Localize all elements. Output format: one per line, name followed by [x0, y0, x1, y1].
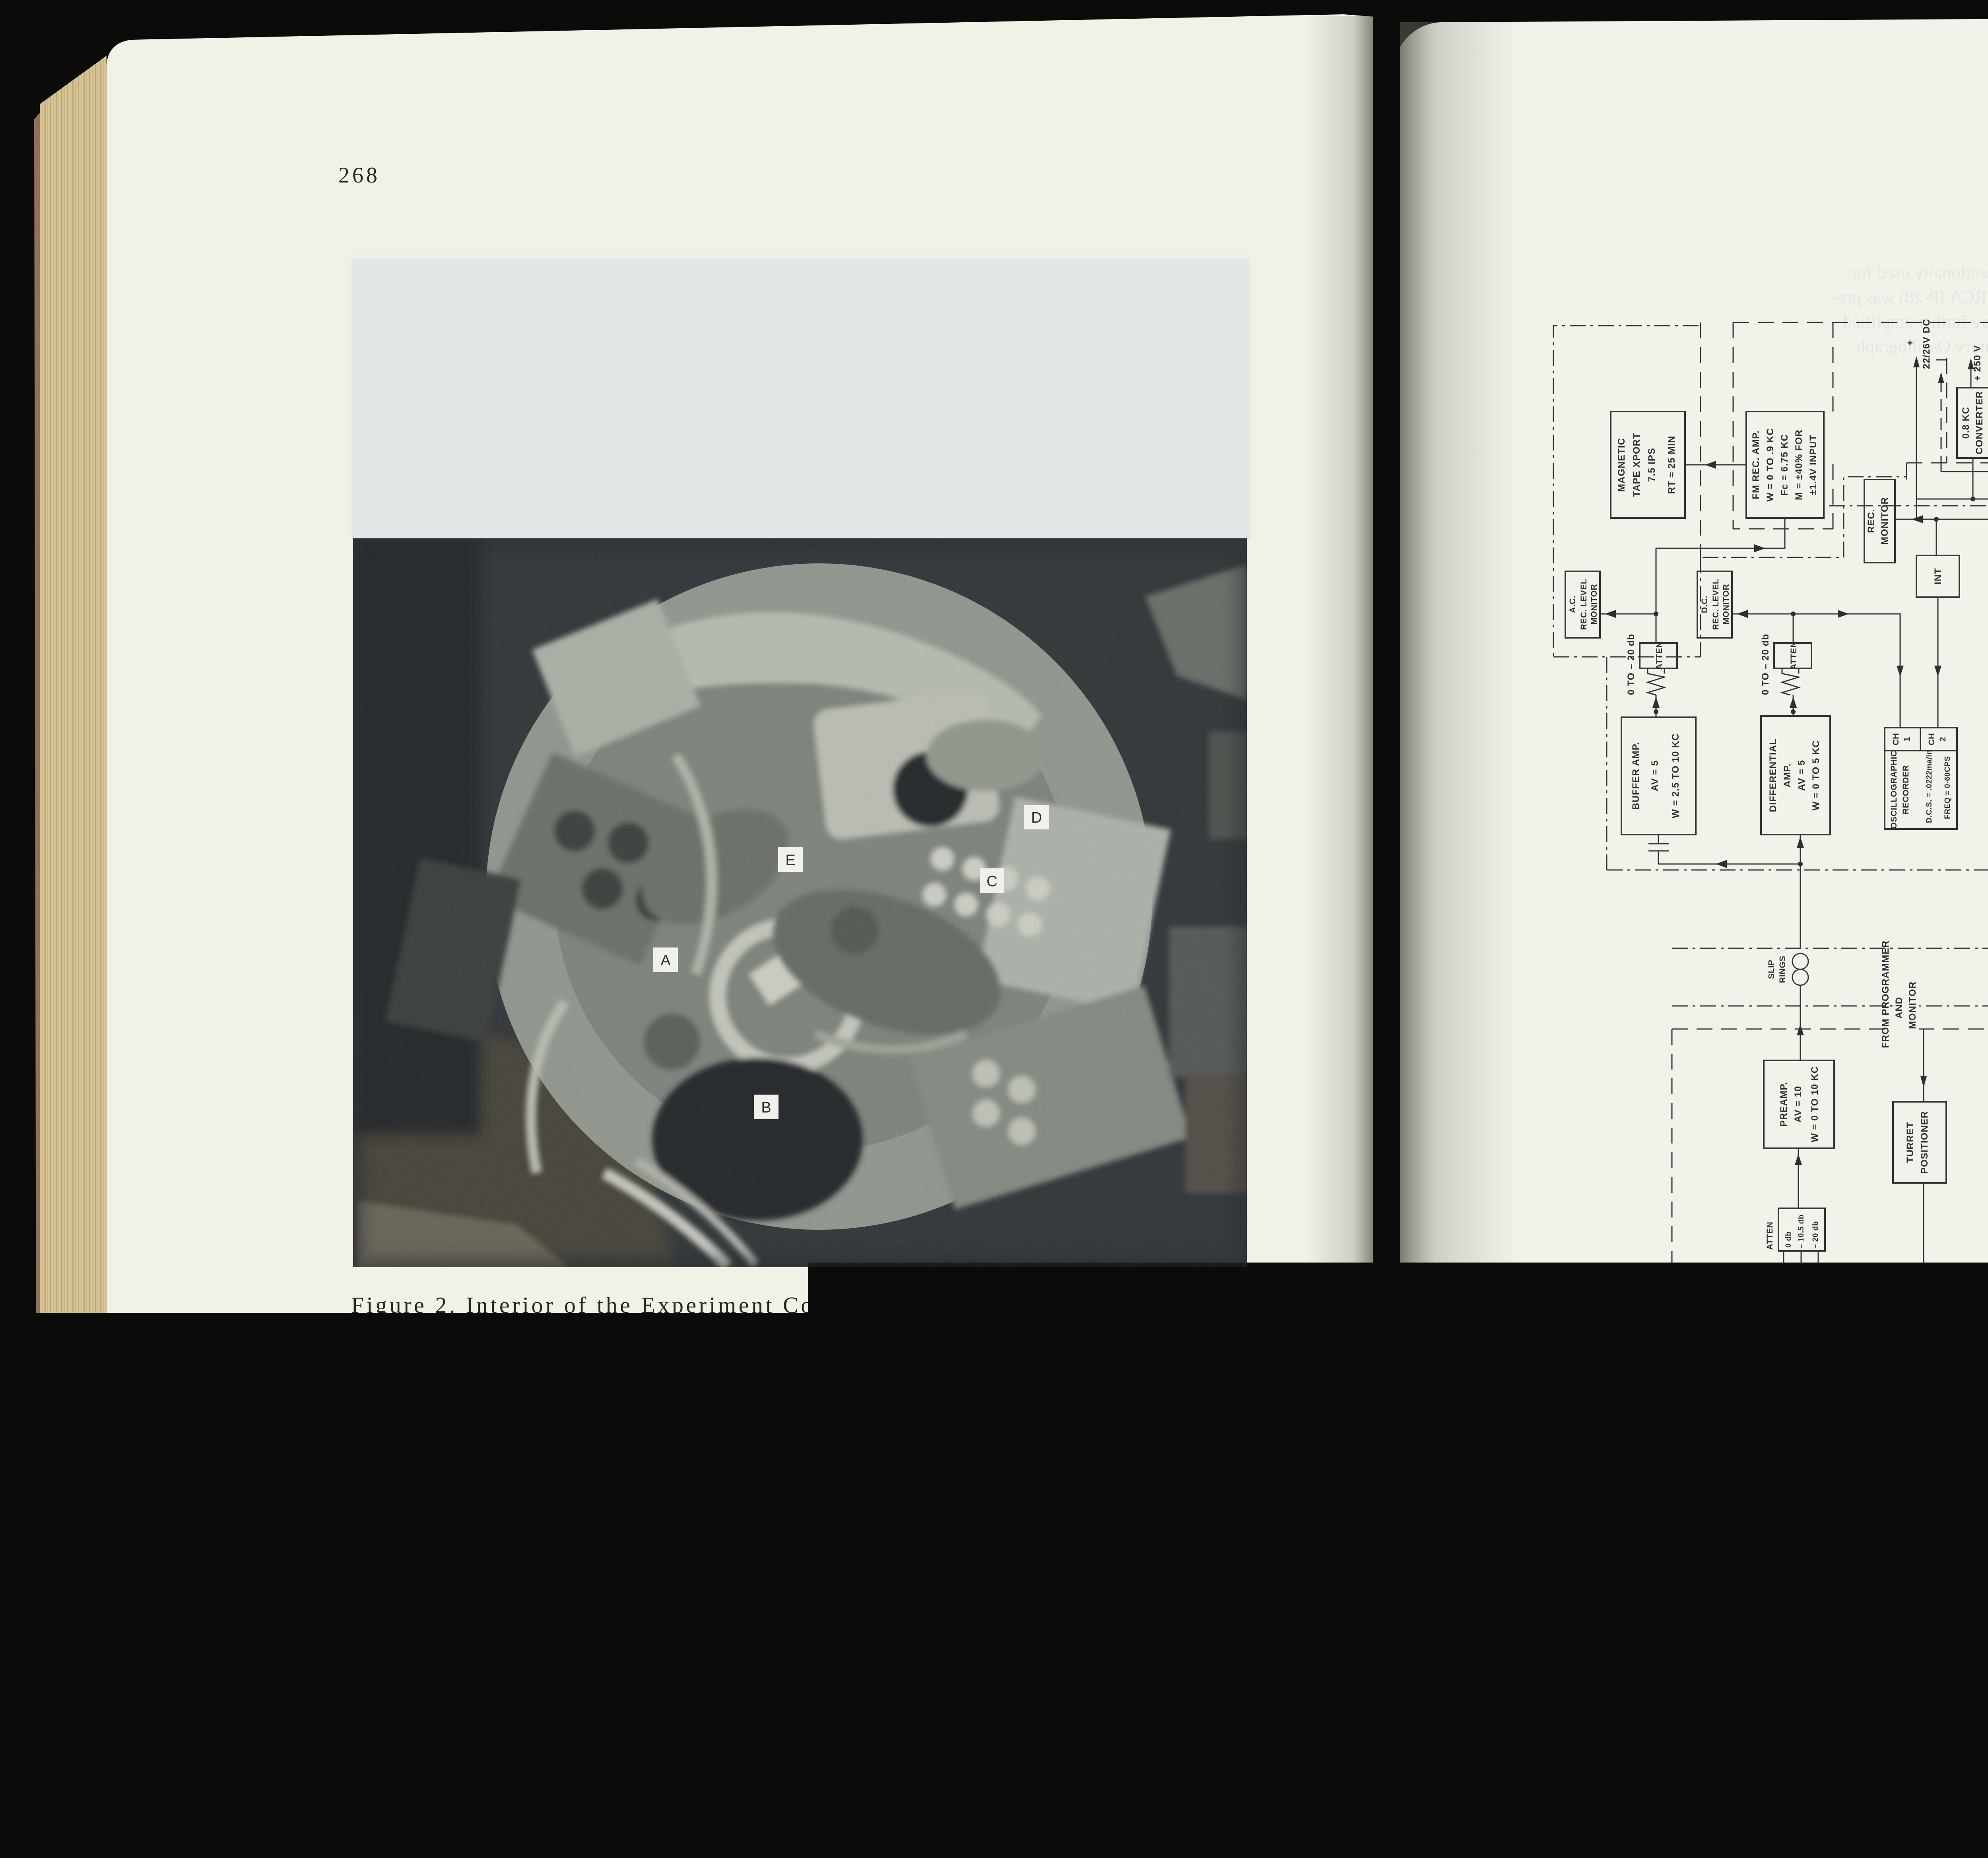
- svg-text:LIGHT: LIGHT: [1788, 1476, 1799, 1507]
- svg-text:SLIP: SLIP: [1767, 960, 1776, 979]
- svg-text:2: 2: [1938, 737, 1947, 742]
- svg-text:FROM PROGRAMMER: FROM PROGRAMMER: [1880, 940, 1891, 1048]
- svg-text:DIA = 3mm: DIA = 3mm: [1748, 1406, 1759, 1458]
- svg-text:E: E: [785, 852, 795, 869]
- svg-text:The scintillation photometer w: The scintillation photometer was similar…: [1851, 262, 1988, 282]
- svg-text:Figure 2. Interior of the Exp: Figure 2. Interior of the Experiment Com…: [351, 1292, 1284, 1318]
- svg-text:REC. LEVEL: REC. LEVEL: [1711, 579, 1720, 630]
- svg-text:LENS: LENS: [1837, 1469, 1847, 1496]
- svg-text:SCINT: SCINT: [1887, 1351, 1897, 1382]
- svg-text:W = 2.5 TO 10 KC: W = 2.5 TO 10 KC: [1670, 733, 1681, 818]
- svg-text:FIELD: FIELD: [1825, 1466, 1836, 1496]
- svg-text:DIFFERENTIAL: DIFFERENTIAL: [1768, 738, 1778, 812]
- svg-text:SCINTILLATION: SCINTILLATION: [1756, 1303, 1767, 1380]
- svg-text:Experiment Compartment, B. St: Experiment Compartment, B. Star Tracker,…: [566, 1672, 1101, 1692]
- svg-text:AMP.: AMP.: [1782, 763, 1793, 788]
- svg-text:FM REC. AMP.: FM REC. AMP.: [1751, 430, 1761, 499]
- svg-text:268: 268: [338, 163, 380, 188]
- svg-text:D.C.: D.C.: [1700, 596, 1709, 613]
- svg-text:MONITOR: MONITOR: [1590, 584, 1599, 625]
- svg-text:IR: IR: [1885, 1268, 1896, 1278]
- svg-text:POSITIONER: POSITIONER: [1919, 1111, 1930, 1174]
- svg-text:A.C.: A.C.: [1568, 596, 1577, 613]
- svg-text:AND: AND: [1894, 997, 1905, 1019]
- svg-text:CH: CH: [1891, 733, 1901, 745]
- svg-text:TURRET PACKAGE: TURRET PACKAGE: [1582, 1314, 1593, 1408]
- svg-text:OSCILLOGRAPHIC: OSCILLOGRAPHIC: [1889, 750, 1899, 829]
- svg-text:C: C: [986, 873, 997, 890]
- svg-text:ATTEN: ATTEN: [1765, 1222, 1774, 1250]
- svg-text:FREQ = 0-60CPS: FREQ = 0-60CPS: [1943, 756, 1952, 819]
- svg-text:XDUCER: XDUCER: [1767, 1338, 1778, 1380]
- svg-text:Fc = 6.75 KC: Fc = 6.75 KC: [1779, 434, 1790, 495]
- svg-text:Package, D. Dome of Mounting,: Package, D. Dome of Mounting, E.: [815, 1697, 1074, 1718]
- svg-text:REC. LEVEL: REC. LEVEL: [1579, 579, 1588, 630]
- svg-text:TAPE XPORT: TAPE XPORT: [1631, 433, 1642, 497]
- svg-text:MONITOR: MONITOR: [1722, 584, 1731, 625]
- svg-text:astronomical photometry. The: astronomical photometry. The signal from…: [1832, 287, 1988, 307]
- svg-text:AV = 10: AV = 10: [1793, 1086, 1804, 1123]
- svg-text:MONITOR: MONITOR: [1907, 981, 1918, 1029]
- svg-text:CH: CH: [1927, 733, 1936, 745]
- svg-text:RINGS: RINGS: [1778, 955, 1787, 983]
- svg-text:– 10.5 db: – 10.5 db: [1797, 1214, 1806, 1248]
- svg-text:RT ≈ 25 MIN: RT ≈ 25 MIN: [1666, 436, 1677, 494]
- svg-text:B: B: [761, 1099, 771, 1116]
- svg-text:MONITOR: MONITOR: [1879, 497, 1890, 545]
- svg-text:7.5 IPS: 7.5 IPS: [1646, 448, 1657, 482]
- svg-text:±1.4V INPUT: ±1.4V INPUT: [1808, 435, 1819, 495]
- svg-text:Figure 1. Telescope Mounted o: Figure 1. Telescope Mounted on Gondola. …: [534, 1646, 1081, 1666]
- svg-text:BUFFER AMP.: BUFFER AMP.: [1631, 742, 1641, 810]
- svg-text:AV = 5: AV = 5: [1650, 760, 1660, 791]
- svg-text:ATTEN: ATTEN: [1789, 642, 1798, 670]
- svg-text:0 TO – 20 db: 0 TO – 20 db: [1760, 634, 1771, 695]
- svg-text:ATTEN: ATTEN: [1655, 642, 1664, 670]
- svg-text:MAGNETIC: MAGNETIC: [1616, 438, 1627, 492]
- svg-text:D: D: [1031, 810, 1042, 826]
- svg-text:+ 250 V: + 250 V: [1972, 345, 1983, 381]
- svg-text:D.C.S. = .0222ma/in: D.C.S. = .0222ma/in: [1925, 750, 1934, 823]
- svg-text:APERTURE: APERTURE: [1737, 1403, 1748, 1458]
- svg-text:IP 21: IP 21: [1797, 1330, 1807, 1354]
- svg-text:BILGE PACKAGE: BILGE PACKAGE: [1640, 1324, 1650, 1408]
- svg-text:INT: INT: [1933, 568, 1943, 584]
- svg-text:CAMERA: CAMERA: [1985, 1286, 1988, 1330]
- svg-text:CONVERTER: CONVERTER: [1974, 391, 1985, 454]
- svg-text:RECORDER: RECORDER: [1901, 765, 1910, 814]
- svg-text:W = 0 TO 5 KC: W = 0 TO 5 KC: [1811, 740, 1821, 810]
- svg-text:0 db: 0 db: [1784, 1231, 1793, 1248]
- svg-text:W = 0 TO .9 KC: W = 0 TO .9 KC: [1765, 428, 1776, 502]
- svg-text:PREAMP.: PREAMP.: [1778, 1081, 1789, 1126]
- svg-text:Camera, B. Infrared Photome: Camera, B. Infrared Photometer, C. Rotat…: [351, 1325, 1223, 1351]
- svg-text:A: A: [660, 952, 671, 969]
- svg-text:M = ±40% FOR: M = ±40% FOR: [1794, 429, 1804, 500]
- svg-text:0 TO – 20 db: 0 TO – 20 db: [1626, 634, 1637, 695]
- svg-text:+: +: [1905, 340, 1916, 346]
- svg-text:AV = 5: AV = 5: [1796, 760, 1807, 791]
- svg-text:SLIP RING ASSEMBLY: SLIP RING ASSEMBLY: [1601, 1299, 1612, 1409]
- svg-text:22/26V DC: 22/26V DC: [1921, 319, 1932, 369]
- svg-text:TURRET: TURRET: [1905, 1122, 1916, 1163]
- svg-text:Operate Telescope, B. Scintil: Operate Telescope, B. Scintillation Phot…: [1835, 1495, 1988, 1515]
- svg-text:INCIDENT: INCIDENT: [1777, 1459, 1788, 1507]
- svg-text:– 20 db: – 20 db: [1811, 1221, 1820, 1248]
- svg-text:and recorded on a Genisco runa: and recorded on a Genisco runable tape r…: [1852, 336, 1988, 356]
- svg-text:1: 1: [1903, 737, 1912, 742]
- svg-text:PANEL PACKAGE: PANEL PACKAGE: [1621, 1322, 1632, 1408]
- svg-text:M: M: [1920, 1309, 1930, 1316]
- svg-text:amplified and split into AC an: amplified and split into AC and DC compo…: [1843, 311, 1988, 332]
- svg-text:STAR: STAR: [1745, 1353, 1756, 1380]
- svg-text:REC.: REC.: [1866, 509, 1877, 533]
- svg-text:W = 0 TO 10 KC: W = 0 TO 10 KC: [1809, 1066, 1820, 1142]
- svg-text:0.8 KC: 0.8 KC: [1961, 407, 1971, 439]
